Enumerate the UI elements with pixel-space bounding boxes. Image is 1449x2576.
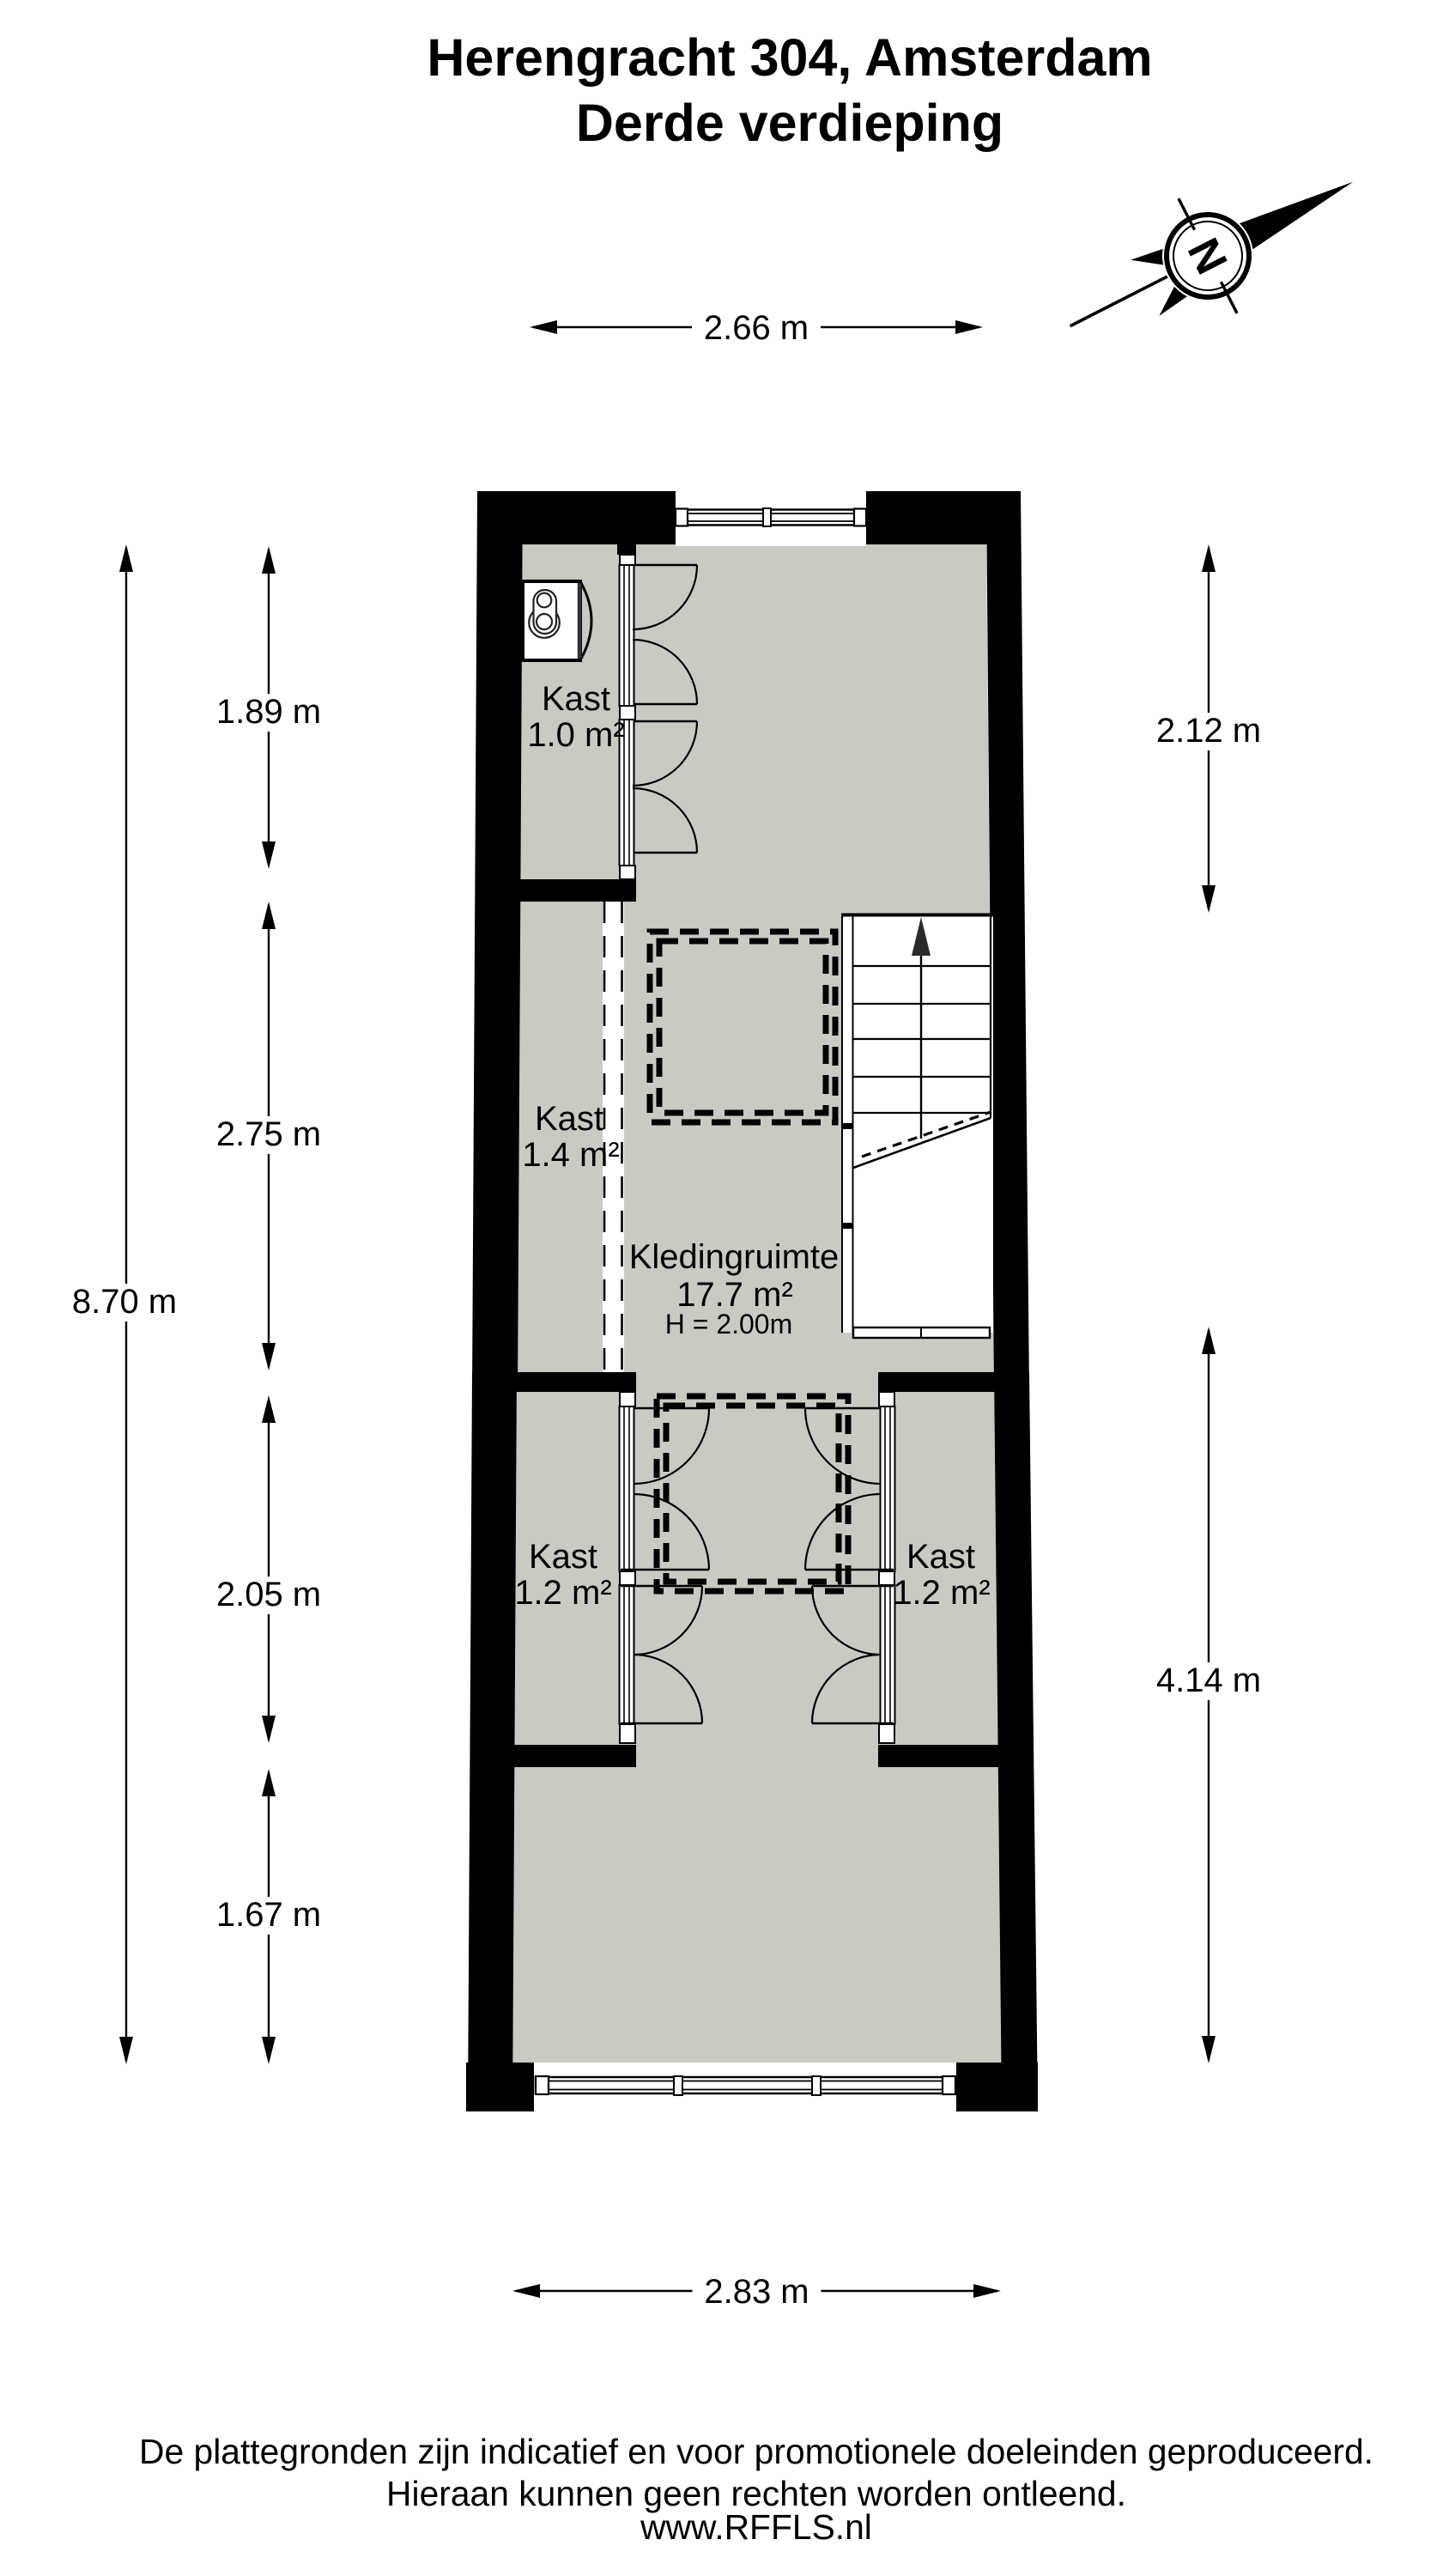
svg-text:Kast: Kast xyxy=(906,1538,975,1576)
svg-text:1.0 m²: 1.0 m² xyxy=(527,716,624,754)
svg-text:1.4 m²: 1.4 m² xyxy=(522,1136,619,1174)
svg-text:2.05 m: 2.05 m xyxy=(216,1576,321,1613)
svg-text:Kast: Kast xyxy=(542,680,610,718)
svg-text:De plattegronden zijn indicati: De plattegronden zijn indicatief en voor… xyxy=(139,2432,1373,2471)
svg-text:Derde verdieping: Derde verdieping xyxy=(576,94,1003,152)
svg-text:1.89 m: 1.89 m xyxy=(216,693,321,731)
svg-text:4.14 m: 4.14 m xyxy=(1156,1662,1261,1699)
svg-text:Kast: Kast xyxy=(535,1100,603,1138)
svg-text:2.66 m: 2.66 m xyxy=(704,309,809,347)
svg-text:Kledingruimte: Kledingruimte xyxy=(629,1238,840,1276)
svg-text:1.2 m²: 1.2 m² xyxy=(893,1574,990,1612)
svg-text:www.RFFLS.nl: www.RFFLS.nl xyxy=(640,2507,872,2547)
svg-text:1.67 m: 1.67 m xyxy=(216,1896,321,1934)
svg-text:2.75 m: 2.75 m xyxy=(216,1115,321,1153)
svg-text:2.12 m: 2.12 m xyxy=(1156,712,1261,750)
svg-text:1.2 m²: 1.2 m² xyxy=(514,1574,611,1612)
svg-text:2.83 m: 2.83 m xyxy=(704,2273,809,2311)
svg-text:8.70 m: 8.70 m xyxy=(72,1283,177,1321)
svg-text:H = 2.00m: H = 2.00m xyxy=(665,1309,793,1340)
svg-text:Kast: Kast xyxy=(529,1538,597,1576)
svg-text:Herengracht 304, Amsterdam: Herengracht 304, Amsterdam xyxy=(427,28,1152,87)
